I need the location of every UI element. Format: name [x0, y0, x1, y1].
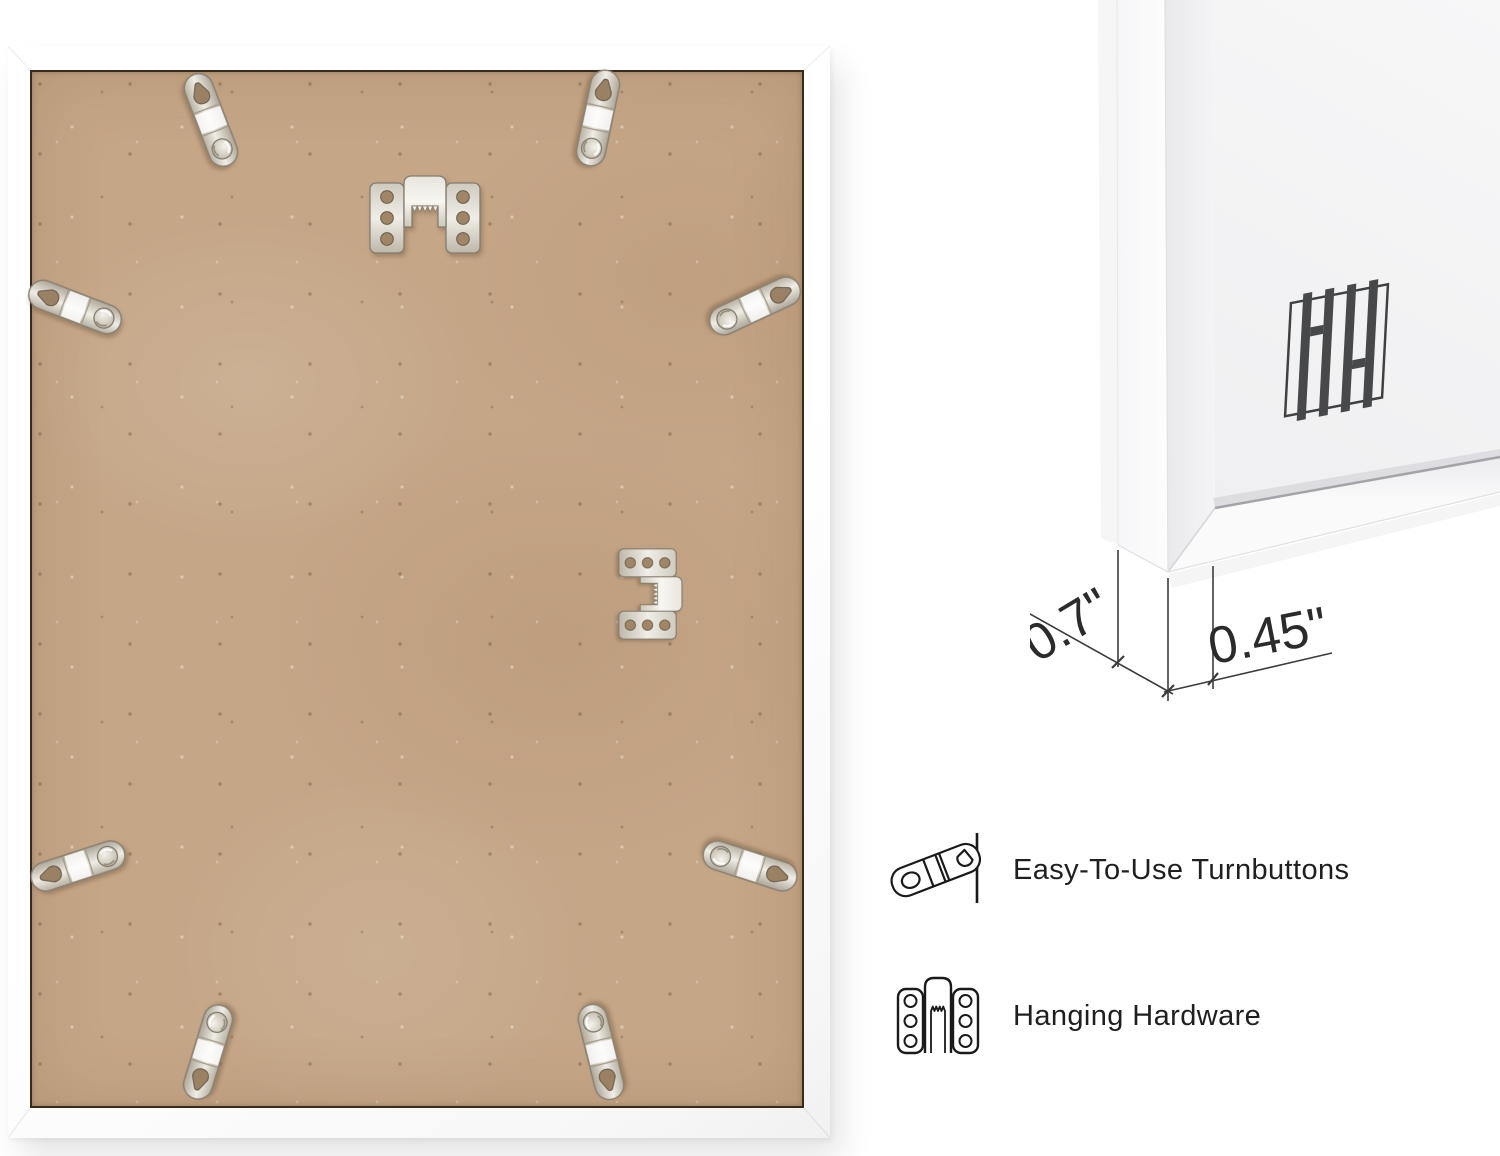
- face-width-measurement-label: 0.45": [1203, 596, 1332, 676]
- sawtooth-hanger-middle: [617, 547, 683, 640]
- sawtooth-hanger-top: [368, 175, 482, 255]
- feature-row-hardware: Hanging Hardware: [885, 971, 1261, 1061]
- frame-side-face: [1117, 0, 1168, 572]
- feature-row-turnbuttons: Easy-To-Use Turnbuttons: [885, 825, 1349, 915]
- frame-front-face: [1165, 0, 1215, 572]
- mat-board: [1212, 0, 1500, 508]
- frame-corner-closeup: 0.7" 0.45": [1030, 0, 1500, 712]
- hanging-hardware-icon: [885, 971, 991, 1061]
- turnbutton-icon: [885, 825, 991, 915]
- depth-measurement-label: 0.7": [1030, 577, 1121, 673]
- wall-shade: [1098, 0, 1118, 545]
- feature-label: Hanging Hardware: [1013, 1000, 1261, 1033]
- product-image: 0.7" 0.45" Easy-To-Use Turnbuttons: [0, 0, 1500, 1156]
- feature-label: Easy-To-Use Turnbuttons: [1013, 854, 1349, 887]
